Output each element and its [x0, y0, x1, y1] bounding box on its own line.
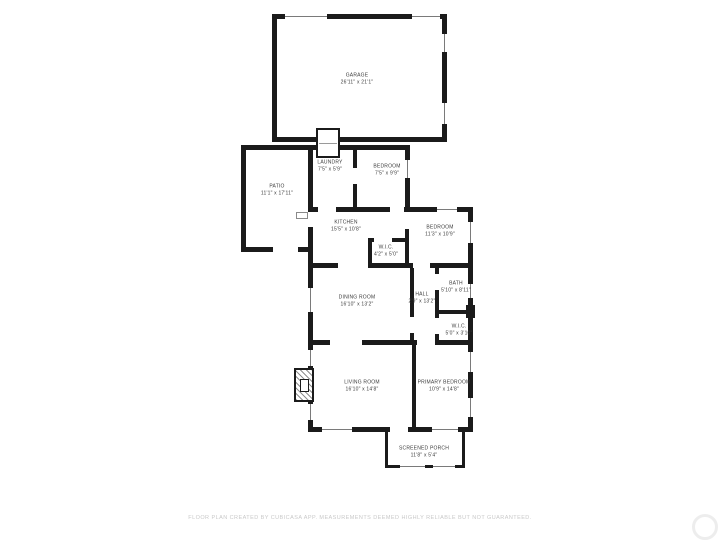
wall-segment	[272, 14, 277, 142]
wall-segment	[468, 243, 473, 284]
window-marker	[468, 398, 473, 417]
wall-segment	[308, 227, 313, 288]
wall-segment	[308, 145, 313, 212]
room-dims: 16'10" x 13'2"	[339, 301, 376, 308]
wall-segment	[385, 432, 388, 468]
room-name: LIVING ROOM	[344, 380, 380, 387]
window-marker	[432, 427, 458, 432]
wall-segment	[353, 150, 357, 168]
fireplace	[294, 368, 314, 402]
wall-segment	[435, 290, 439, 310]
room-label-screened-porch: SCREENED PORCH 11'8" x 5'4"	[399, 446, 449, 459]
window-marker	[322, 427, 352, 432]
room-dims: 10'9" x 14'8"	[418, 386, 471, 393]
room-label-laundry: LAUNDRY 7'5" x 5'9"	[317, 160, 342, 173]
window-marker	[285, 14, 327, 19]
room-dims: 4'2" x 5'0"	[374, 251, 398, 258]
room-name: GARAGE	[341, 73, 374, 80]
garage-entry-step	[316, 128, 340, 158]
wall-segment	[455, 465, 465, 468]
wall-segment	[362, 340, 417, 345]
wall-segment	[425, 465, 433, 468]
wall-segment	[468, 298, 473, 305]
room-dims: 11'8" x 5'4"	[399, 452, 449, 459]
window-marker	[442, 34, 447, 52]
wall-segment	[468, 207, 473, 222]
wall-segment	[442, 52, 447, 103]
wall-segment	[353, 184, 357, 207]
wall-segment	[241, 145, 308, 150]
room-label-dining-room: DINING ROOM 16'10" x 13'2"	[339, 295, 376, 308]
floor-plan-canvas: GARAGE 26'11" x 21'1" PATIO 11'1" x 17'1…	[0, 0, 720, 540]
watermark-logo	[692, 514, 718, 540]
room-label-bath: BATH 5'10" x 8'11"	[441, 281, 471, 294]
wall-segment	[385, 465, 400, 468]
room-label-garage: GARAGE 26'11" x 21'1"	[341, 73, 374, 86]
wall-segment	[405, 178, 410, 207]
room-label-kitchen: KITCHEN 15'5" x 10'8"	[331, 220, 361, 233]
window-marker	[405, 160, 410, 178]
room-dims: 5'10" x 8'11"	[441, 287, 471, 294]
wall-segment	[435, 268, 439, 274]
wall-segment	[392, 238, 405, 242]
wall-segment	[340, 137, 447, 142]
room-dims: 15'5" x 10'8"	[331, 226, 361, 233]
wall-segment	[313, 340, 330, 345]
room-name: LAUNDRY	[317, 160, 342, 167]
wall-segment	[435, 314, 439, 318]
wall-segment	[405, 229, 409, 263]
wall-segment	[437, 340, 473, 345]
room-dims: 5'0" x 3'10"	[445, 330, 472, 337]
wall-segment	[241, 145, 246, 252]
room-dims: 11'3" x 10'9"	[425, 231, 455, 238]
window-marker	[308, 288, 313, 312]
window-marker	[400, 465, 425, 468]
wall-segment	[272, 137, 316, 142]
room-label-bedroom-right: BEDROOM 11'3" x 10'9"	[425, 225, 455, 238]
room-label-primary-bedroom: PRIMARY BEDROOM 10'9" x 14'8"	[418, 380, 471, 393]
window-marker	[308, 350, 313, 366]
room-dims: 7'5" x 9'9"	[373, 170, 400, 177]
wall-segment	[404, 207, 437, 212]
wall-segment	[338, 145, 410, 150]
wall-segment	[372, 263, 413, 268]
room-name: PRIMARY BEDROOM	[418, 380, 471, 387]
room-label-wic-upper: W.I.C. 4'2" x 5'0"	[374, 245, 398, 258]
room-name: SCREENED PORCH	[399, 446, 449, 453]
room-dims: 26'11" x 21'1"	[341, 79, 374, 86]
room-dims: 7'5" x 5'9"	[317, 166, 342, 173]
wall-segment	[308, 207, 318, 212]
patio-door-threshold	[296, 212, 308, 219]
room-dims: 16'10" x 14'8"	[344, 386, 380, 393]
wall-segment	[308, 427, 322, 432]
wall-segment	[462, 432, 465, 468]
room-label-living-room: LIVING ROOM 16'10" x 14'8"	[344, 380, 380, 393]
room-label-wic-lower: W.I.C. 5'0" x 3'10"	[445, 324, 472, 337]
window-marker	[468, 222, 473, 243]
disclaimer-text: FLOOR PLAN CREATED BY CUBICASA APP. MEAS…	[0, 515, 720, 521]
wall-segment	[313, 263, 338, 268]
wall-segment	[412, 345, 416, 432]
room-name: KITCHEN	[331, 220, 361, 227]
room-name: BEDROOM	[373, 164, 400, 171]
window-marker	[468, 352, 473, 372]
room-dims: 11'1" x 17'11"	[261, 190, 293, 197]
room-label-bedroom-top: BEDROOM 7'5" x 9'9"	[373, 164, 400, 177]
window-marker	[437, 207, 457, 212]
wall-segment	[442, 14, 447, 34]
room-name: DINING ROOM	[339, 295, 376, 302]
room-label-patio: PATIO 11'1" x 17'11"	[261, 184, 293, 197]
wall-segment	[241, 247, 273, 252]
wall-segment	[327, 14, 412, 19]
window-marker	[433, 465, 455, 468]
room-label-hall: HALL 2'9" x 13'2"	[408, 292, 435, 305]
room-dims: 2'9" x 13'2"	[408, 298, 435, 305]
fireplace-insert	[300, 379, 309, 392]
window-marker	[412, 14, 440, 19]
wall-segment	[336, 207, 390, 212]
window-marker	[308, 404, 313, 420]
wall-segment	[405, 145, 410, 160]
wall-segment	[408, 427, 432, 432]
wall-segment	[435, 310, 473, 314]
wall-segment	[368, 238, 374, 242]
wall-segment	[458, 427, 473, 432]
window-marker	[442, 103, 447, 124]
room-name: BEDROOM	[425, 225, 455, 232]
